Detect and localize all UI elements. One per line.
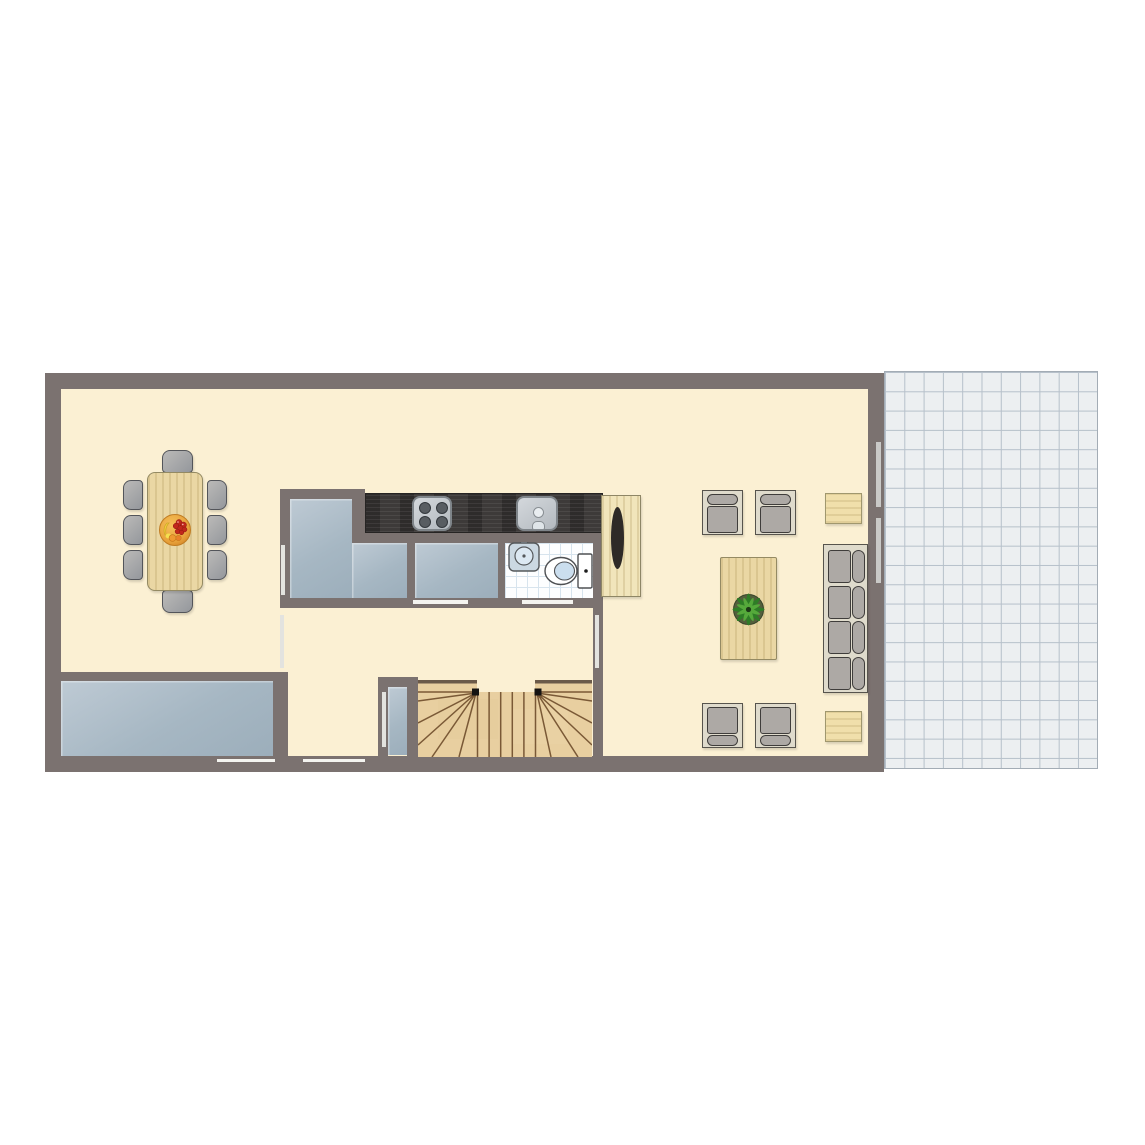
vestibule-wall-right bbox=[407, 687, 418, 756]
utility-room-wall-top bbox=[45, 672, 288, 681]
armchair bbox=[755, 703, 796, 748]
utility-room-wall-right bbox=[273, 672, 288, 756]
counter-end-wall bbox=[352, 489, 365, 533]
orange-icon bbox=[169, 535, 176, 542]
armchair bbox=[702, 703, 743, 748]
armchair bbox=[702, 490, 743, 535]
entrance-vestibule-floor bbox=[388, 687, 407, 755]
bathroom-wall-left bbox=[498, 543, 505, 598]
kitchen-sink bbox=[516, 496, 558, 531]
door-marker-hall-east bbox=[595, 615, 599, 668]
faucet-base-icon bbox=[532, 521, 545, 530]
door-marker-storage-right bbox=[413, 600, 468, 604]
side-table bbox=[825, 493, 862, 524]
vestibule-wall-top bbox=[378, 677, 418, 687]
patio-tiles bbox=[884, 371, 1098, 769]
wardrobe-door-icon bbox=[611, 507, 624, 569]
armchair bbox=[755, 490, 796, 535]
bathroom-fixtures bbox=[505, 542, 595, 592]
dining-chair bbox=[207, 550, 227, 580]
door-marker-vestibule bbox=[382, 692, 386, 747]
exterior-wall-left bbox=[45, 389, 61, 756]
dining-chair bbox=[123, 515, 143, 545]
patio-door-marker-1 bbox=[876, 442, 881, 507]
exterior-wall-top bbox=[45, 373, 884, 389]
exterior-door-marker-1 bbox=[217, 759, 275, 762]
stair-newel-icon bbox=[535, 689, 542, 696]
dining-chair bbox=[162, 590, 193, 613]
fruit-bowl bbox=[158, 513, 192, 547]
door-marker-storage-left bbox=[281, 545, 285, 595]
door-marker-hall-west bbox=[280, 615, 284, 668]
storage-divider-wall bbox=[407, 543, 415, 598]
stair-newel-icon bbox=[472, 689, 479, 696]
side-table bbox=[825, 711, 862, 742]
utility-room-floor bbox=[61, 681, 273, 756]
cooktop bbox=[412, 496, 452, 531]
dining-chair bbox=[207, 480, 227, 510]
dining-chair bbox=[207, 515, 227, 545]
potted-plant bbox=[725, 586, 772, 633]
burner-icon bbox=[419, 516, 431, 528]
dining-chair bbox=[123, 550, 143, 580]
exterior-wall-bottom bbox=[45, 756, 884, 772]
dining-chair bbox=[162, 450, 193, 473]
storage-room-left-floor-ext bbox=[352, 543, 407, 598]
burner-icon bbox=[419, 502, 431, 514]
burner-icon bbox=[436, 516, 448, 528]
door-marker-bathroom bbox=[522, 600, 573, 604]
storage-room-right-floor bbox=[415, 543, 498, 598]
storage-room-left-floor bbox=[290, 499, 352, 598]
faucet-icon bbox=[533, 507, 544, 518]
burner-icon bbox=[436, 502, 448, 514]
dining-chair bbox=[123, 480, 143, 510]
floor-plan bbox=[0, 0, 1145, 1145]
patio-door-marker-2 bbox=[876, 518, 881, 583]
sofa bbox=[823, 544, 868, 693]
kitchen-counter bbox=[365, 493, 603, 533]
exterior-door-marker-2 bbox=[303, 759, 365, 762]
staircase bbox=[418, 679, 592, 757]
